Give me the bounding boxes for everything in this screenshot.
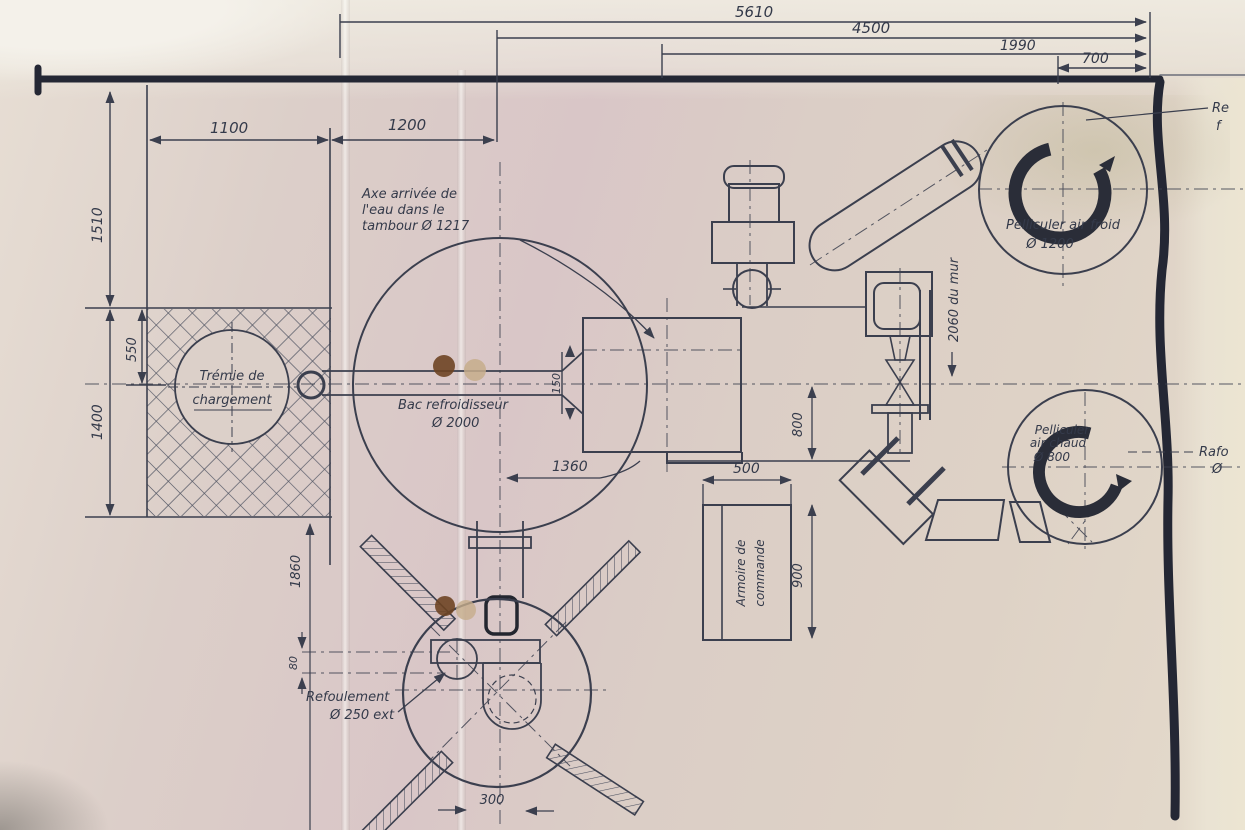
dim-1100: 1100 bbox=[210, 119, 248, 137]
armoire-label-2: commande bbox=[753, 539, 767, 606]
pump-top-capsule bbox=[486, 597, 517, 634]
dim-1200: 1200 bbox=[388, 116, 426, 134]
dim-800: 800 bbox=[791, 412, 806, 437]
punch-hole bbox=[433, 355, 455, 377]
fan-chaud-label-3: Ø 800 bbox=[1033, 450, 1071, 464]
duct-flange bbox=[942, 140, 972, 176]
dim-900: 900 bbox=[791, 563, 806, 588]
drawing-canvas: 5610 4500 1990 700 1510 1400 550 1100 12… bbox=[0, 0, 1245, 830]
wall-pump-assembly bbox=[866, 272, 932, 453]
bac-label-2: Ø 2000 bbox=[431, 416, 479, 431]
fan-air-froid bbox=[979, 106, 1208, 274]
bac-label-1: Bac refroidisseur bbox=[398, 398, 510, 413]
dim-300: 300 bbox=[480, 793, 505, 808]
wall-section bbox=[85, 85, 332, 565]
fan-froid-label-1: Pelliculer air froid bbox=[1006, 218, 1121, 233]
tremie-label-1: Trémie de bbox=[200, 369, 265, 384]
punch-hole bbox=[464, 359, 486, 381]
fan-froid-label-2: Ø 1200 bbox=[1025, 237, 1073, 252]
axe-label-1: Axe arrivée de bbox=[361, 187, 457, 202]
dim-2060-du-mur: 2060 du mur bbox=[947, 256, 962, 342]
edge-label-top-2: f bbox=[1216, 119, 1223, 134]
refoulement-label-1: Refoulement bbox=[306, 690, 390, 705]
dim-4500: 4500 bbox=[852, 19, 890, 37]
dim-500: 500 bbox=[733, 461, 760, 477]
scanned-drawing-page: 5610 4500 1990 700 1510 1400 550 1100 12… bbox=[0, 0, 1245, 830]
axe-label-2: l'eau dans le bbox=[362, 203, 445, 218]
dim-1990: 1990 bbox=[1000, 38, 1036, 54]
fan-chaud-label-1: Pelliculer bbox=[1035, 423, 1091, 437]
refoulement-label-2: Ø 250 ext bbox=[329, 708, 395, 723]
dim-550: 550 bbox=[125, 337, 140, 362]
elbow-duct bbox=[840, 438, 1050, 544]
bottom-pump bbox=[302, 521, 643, 830]
punch-hole bbox=[435, 596, 455, 616]
motor-body bbox=[729, 184, 779, 222]
edge-label-right-1: Rafo bbox=[1199, 445, 1229, 460]
dim-300-group bbox=[438, 810, 554, 811]
motor-pedestal bbox=[712, 222, 794, 263]
punch-hole bbox=[456, 600, 476, 620]
dim-1360: 1360 bbox=[552, 459, 588, 475]
dim-1510: 1510 bbox=[90, 207, 106, 243]
armoire-label-1: Armoire de bbox=[734, 540, 748, 608]
bac-refroidisseur bbox=[322, 238, 647, 532]
dim-700: 700 bbox=[1082, 51, 1109, 67]
fan-chaud-label-2: air chaud bbox=[1030, 436, 1087, 450]
edge-label-right-2: Ø bbox=[1211, 462, 1223, 477]
tremie-label-2: chargement bbox=[193, 393, 273, 408]
dim-1400: 1400 bbox=[90, 404, 106, 440]
dim-150: 150 bbox=[550, 373, 563, 394]
dim-1860: 1860 bbox=[289, 555, 304, 588]
corner-leader bbox=[1086, 108, 1208, 120]
axe-label-3: tambour Ø 1217 bbox=[362, 219, 470, 234]
central-machine-block bbox=[583, 307, 910, 463]
edge-label-top-1: Re bbox=[1212, 101, 1229, 116]
dim-80: 80 bbox=[287, 656, 300, 670]
dim-5610: 5610 bbox=[735, 3, 773, 21]
